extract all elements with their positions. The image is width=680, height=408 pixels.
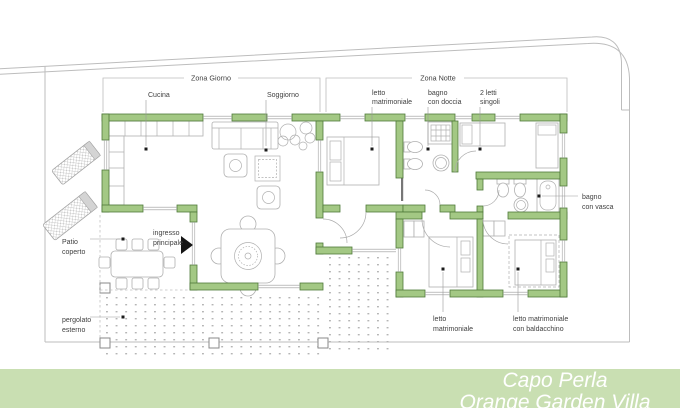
pergola-dot (339, 278, 341, 279)
pergola-dot (250, 353, 252, 354)
pergola-dot (221, 311, 223, 312)
pergola-dot (164, 297, 166, 298)
pergola-dot (317, 304, 319, 305)
pergola-dot (135, 325, 137, 326)
pergola-dot (288, 311, 290, 312)
room-label-bagno-doccia: bagno (428, 90, 448, 97)
bidet (404, 159, 423, 170)
pergola-dot (116, 311, 118, 312)
pergola-dot (308, 325, 310, 326)
pergola-dot (288, 332, 290, 333)
pergola-dot (269, 332, 271, 333)
pergola-dot (329, 306, 331, 307)
pergola-dot (317, 325, 319, 326)
pergola-dot (339, 341, 341, 342)
pergola-dot (339, 306, 341, 307)
pergola-dot (106, 304, 108, 305)
pergola-dot (135, 346, 137, 347)
pergola-dot (377, 320, 379, 321)
pergola-dot (192, 332, 194, 333)
pergola-dot (329, 313, 331, 314)
double-bed (429, 237, 473, 287)
pergola-dot (192, 325, 194, 326)
pergola-dot (377, 292, 379, 293)
pergola-dot (154, 297, 156, 298)
pergola-dot (367, 264, 369, 265)
pergola-dot (183, 332, 185, 333)
pergola-dot (173, 325, 175, 326)
pergola-dot (339, 320, 341, 321)
room-label-patio: Patio (62, 239, 78, 246)
pergola-dot (348, 306, 350, 307)
pergola-dot (125, 318, 127, 319)
pergola-dot (202, 346, 204, 347)
pergola-dot (298, 297, 300, 298)
pergola-dot (329, 257, 331, 258)
pergola-dot (125, 346, 127, 347)
pergola-dot (348, 285, 350, 286)
pergola-dot (269, 346, 271, 347)
pergola-dot (240, 304, 242, 305)
pergola-dot (260, 353, 262, 354)
pergola-dot (192, 297, 194, 298)
pergola-dot (358, 278, 360, 279)
banner-line1: Capo Perla (459, 370, 650, 392)
pergola-dot (298, 339, 300, 340)
shower (428, 122, 453, 144)
pergola-dot (144, 339, 146, 340)
pergola-post (209, 338, 219, 348)
pergola-dot (329, 320, 331, 321)
pergola-dot (358, 299, 360, 300)
pergola-dot (367, 306, 369, 307)
pergola-dot (231, 353, 233, 354)
pergola-dot (250, 297, 252, 298)
pergola-dot (135, 311, 137, 312)
armchair (224, 154, 247, 177)
pergola-dot (240, 332, 242, 333)
pergola-dot (339, 271, 341, 272)
pergola-dot (348, 299, 350, 300)
pergola-dot (154, 332, 156, 333)
pergola-dot (202, 304, 204, 305)
pergola-dot (106, 297, 108, 298)
pergola-dot (250, 325, 252, 326)
pergola-dot (308, 311, 310, 312)
pergola-dot (387, 306, 389, 307)
pergola-dot (298, 332, 300, 333)
pergola-dot (339, 348, 341, 349)
pergola-dot (317, 353, 319, 354)
pergola-dot (367, 285, 369, 286)
zone-day-label: Zona Giorno (191, 74, 231, 83)
pergola-dot (367, 334, 369, 335)
pergola-dot (288, 325, 290, 326)
pergola-post (318, 338, 328, 348)
pergola-dot (387, 327, 389, 328)
pergola-dot (339, 292, 341, 293)
pergola-dot (358, 271, 360, 272)
pergola-dot (164, 318, 166, 319)
pergola-dot (106, 332, 108, 333)
pergola-dot (240, 311, 242, 312)
pergola-dot (377, 278, 379, 279)
pergola-dot (173, 297, 175, 298)
pergola-dot (317, 332, 319, 333)
pergola-dot (183, 353, 185, 354)
pergola-dot (348, 271, 350, 272)
pergola-dot (279, 325, 281, 326)
pergola-dot (116, 297, 118, 298)
pergola-dot (183, 346, 185, 347)
svg-text:coperto: coperto (62, 249, 85, 256)
pergola-dot (260, 304, 262, 305)
pergola-dot (192, 346, 194, 347)
pergola-dot (329, 334, 331, 335)
svg-text:con doccia: con doccia (428, 99, 462, 106)
pergola-dot (144, 304, 146, 305)
pergola-dot (260, 311, 262, 312)
pergola-dot (269, 353, 271, 354)
pergola-dot (308, 353, 310, 354)
pergola-dot (116, 318, 118, 319)
pergola-dot (288, 339, 290, 340)
pergola-dot (221, 332, 223, 333)
double-bed (327, 137, 379, 185)
pergola-dot (367, 257, 369, 258)
room-label-soggiorno: Soggiorno (267, 92, 299, 99)
pergola-dot (173, 353, 175, 354)
pergola-dot (125, 332, 127, 333)
zone-night-label: Zona Notte (420, 74, 456, 83)
floorplan-slide: Zona Giorno Zona Notte Cucina Soggiorno … (0, 0, 680, 408)
pergola-dot (358, 313, 360, 314)
pergola-dot (339, 264, 341, 265)
pergola-dot (329, 341, 331, 342)
pergola-dot (367, 348, 369, 349)
pergola-dot (116, 304, 118, 305)
title-banner: Capo Perla Orange Garden Villa (0, 369, 680, 408)
pergola-dot (240, 325, 242, 326)
pergola-dot (288, 353, 290, 354)
pergola-dot (358, 292, 360, 293)
pergola-dot (173, 346, 175, 347)
pergola-dot (125, 304, 127, 305)
pergola-dot (377, 264, 379, 265)
pergola-dot (269, 304, 271, 305)
pergola-dot (135, 332, 137, 333)
villa-title: Capo Perla Orange Garden Villa (459, 370, 650, 408)
pergola-dot (212, 311, 214, 312)
pergola-dot (240, 297, 242, 298)
svg-text:con baldacchino: con baldacchino (513, 326, 564, 333)
pergola-dot (221, 297, 223, 298)
pergola-dot (298, 346, 300, 347)
pergola-dot (231, 332, 233, 333)
room-label-cucina: Cucina (148, 92, 170, 99)
pergola-dot (144, 325, 146, 326)
pergola-dot (135, 353, 137, 354)
pergola-post (100, 283, 110, 293)
pergola-dot (288, 304, 290, 305)
svg-text:matrimoniale: matrimoniale (433, 326, 473, 333)
pergola-dot (164, 353, 166, 354)
pergola-dot (269, 311, 271, 312)
pergola-dot (308, 339, 310, 340)
pergola-dot (231, 304, 233, 305)
pergola-dot (212, 304, 214, 305)
pergola-dot (377, 285, 379, 286)
pergola-dot (154, 311, 156, 312)
pergola-dot (367, 292, 369, 293)
pergola-dot (348, 320, 350, 321)
single-bed (536, 123, 558, 168)
pergola-dot (329, 348, 331, 349)
pergola-dot (183, 339, 185, 340)
room-label-letti-singoli: 2 letti (480, 90, 497, 97)
pergola-dot (221, 346, 223, 347)
pergola-dot (308, 318, 310, 319)
pergola-dot (348, 334, 350, 335)
pergola-dot (144, 318, 146, 319)
pergola-dot (164, 332, 166, 333)
pergola-dot (387, 278, 389, 279)
pergola-dot (231, 346, 233, 347)
room-label-baldacchino: letto matrimoniale (513, 316, 568, 323)
pergola-dot (288, 346, 290, 347)
pergola-dot (260, 325, 262, 326)
pergola-dot (348, 313, 350, 314)
pergola-dot (387, 257, 389, 258)
pergola-dot (106, 325, 108, 326)
pergola-dot (279, 353, 281, 354)
pergola-dot (377, 348, 379, 349)
pergola-dot (329, 285, 331, 286)
pergola-dot (387, 271, 389, 272)
room-label-pergolato: pergolato (62, 317, 91, 324)
pergola-dot (358, 257, 360, 258)
bidet (514, 179, 526, 197)
pergola-dot (358, 320, 360, 321)
pergola-dot (377, 271, 379, 272)
pergola-dot (308, 332, 310, 333)
pergola-dot (250, 304, 252, 305)
pergola-dot (260, 297, 262, 298)
pergola-post (100, 338, 110, 348)
pergola-dot (154, 318, 156, 319)
pergola-dot (387, 264, 389, 265)
pergola-dot (173, 304, 175, 305)
pergola-dot (377, 313, 379, 314)
svg-text:con vasca: con vasca (582, 204, 614, 211)
wardrobe (404, 221, 424, 237)
pergola-dot (339, 327, 341, 328)
pergola-dot (269, 325, 271, 326)
pergola-dot (173, 318, 175, 319)
pergola-dot (164, 304, 166, 305)
pergola-dot (221, 318, 223, 319)
pergola-dot (144, 353, 146, 354)
pergola-dot (164, 325, 166, 326)
pergola-dot (154, 339, 156, 340)
pergola-dot (339, 313, 341, 314)
pergola-dot (116, 325, 118, 326)
pergola-dot (279, 297, 281, 298)
pergola-dot (387, 299, 389, 300)
pergola-dot (339, 285, 341, 286)
pergola-dot (144, 297, 146, 298)
pergola-dot (308, 304, 310, 305)
room-label-letto-top: letto (372, 90, 385, 97)
pergola-dot (144, 332, 146, 333)
pergola-dot (387, 334, 389, 335)
pergola-dot (358, 341, 360, 342)
pergola-dot (231, 339, 233, 340)
pergola-dot (367, 271, 369, 272)
pergola-dot (269, 297, 271, 298)
pergola-dot (317, 297, 319, 298)
pergola-dot (387, 292, 389, 293)
pergola-dot (231, 311, 233, 312)
pergola-dot (329, 278, 331, 279)
pergola-dot (192, 311, 194, 312)
wardrobe (483, 221, 505, 236)
pergola-dot (240, 353, 242, 354)
pergola-dot (339, 299, 341, 300)
pergola-dot (367, 320, 369, 321)
pergola-dot (202, 318, 204, 319)
pergola-dot (367, 327, 369, 328)
pergola-dot (308, 346, 310, 347)
pergola-dot (329, 271, 331, 272)
pergola-dot (116, 332, 118, 333)
pergola-dot (387, 341, 389, 342)
coffee-table (255, 156, 280, 181)
pergola-dot (348, 292, 350, 293)
pergola-dot (339, 334, 341, 335)
pergola-dot (358, 327, 360, 328)
pergola-dot (250, 339, 252, 340)
pergola-dot (298, 325, 300, 326)
pergola-dot (387, 285, 389, 286)
pergola-dot (240, 318, 242, 319)
pergola-dot (202, 311, 204, 312)
pergola-dot (173, 339, 175, 340)
pergola-dot (377, 341, 379, 342)
single-bed (460, 123, 505, 146)
pergola-dot (317, 311, 319, 312)
pergola-dot (348, 257, 350, 258)
toilet (404, 142, 423, 153)
armchair (257, 186, 280, 209)
svg-text:principale: principale (153, 240, 183, 247)
pergola-dot (377, 306, 379, 307)
sofa (212, 122, 278, 149)
pergola-dot (231, 318, 233, 319)
pergola-dot (250, 311, 252, 312)
pergola-dot (377, 334, 379, 335)
pergola-dot (221, 304, 223, 305)
pergola-dot (202, 339, 204, 340)
pergola-dot (125, 325, 127, 326)
pergola-dot (269, 318, 271, 319)
pergola-dot (212, 325, 214, 326)
pergola-dot (106, 318, 108, 319)
pergola-dot (221, 325, 223, 326)
pergola-dot (348, 327, 350, 328)
pergola-dot (202, 353, 204, 354)
sink (433, 155, 449, 171)
pergola-dot (250, 346, 252, 347)
pergola-dot (125, 297, 127, 298)
pergola-dot (298, 353, 300, 354)
room-label-ingresso: ingresso (153, 230, 180, 237)
pergola-dot (183, 325, 185, 326)
pergola-dot (348, 264, 350, 265)
banner-line2: Orange Garden Villa (459, 392, 650, 408)
pergola-dot (329, 264, 331, 265)
pergola-dot (260, 332, 262, 333)
pergola-dot (260, 318, 262, 319)
pergola-dot (125, 353, 127, 354)
pergola-dot (279, 332, 281, 333)
pergola-dot (125, 311, 127, 312)
pergola-dot (358, 334, 360, 335)
pergola-dot (260, 339, 262, 340)
pergola-dot (135, 297, 137, 298)
svg-text:matrimoniale: matrimoniale (372, 99, 412, 106)
sun-lounger (43, 191, 98, 240)
pergola-dot (279, 339, 281, 340)
pergola-dot (192, 318, 194, 319)
pergola-dot (154, 353, 156, 354)
pergola-dot (116, 346, 118, 347)
pergola-dot (106, 353, 108, 354)
pergola-dot (358, 348, 360, 349)
pergola-dot (212, 318, 214, 319)
pergola-dot (192, 304, 194, 305)
pergola-dot (173, 311, 175, 312)
pergola-dot (125, 339, 127, 340)
svg-text:singoli: singoli (480, 99, 500, 106)
pergola-dot (279, 311, 281, 312)
sun-lounger (52, 141, 101, 185)
pergola-dot (192, 339, 194, 340)
pergola-dot (367, 299, 369, 300)
pergola-dot (154, 325, 156, 326)
pergola-dot (348, 348, 350, 349)
pergola-dot (329, 292, 331, 293)
pergola-dot (212, 297, 214, 298)
pergola-dot (367, 313, 369, 314)
canopy-bed (509, 235, 559, 287)
pergola-dot (279, 304, 281, 305)
pergola-dot (250, 318, 252, 319)
pergola-dot (144, 346, 146, 347)
pergola-dot (308, 297, 310, 298)
pergola-dot (377, 299, 379, 300)
pergola-dot (279, 318, 281, 319)
pergola-dot (367, 278, 369, 279)
pergola-dot (339, 257, 341, 258)
pergola-dot (183, 311, 185, 312)
sink (514, 198, 528, 212)
pergola-dot (377, 257, 379, 258)
pergola-dot (202, 325, 204, 326)
pergola-dot (298, 304, 300, 305)
room-label-bagno-vasca: bagno (582, 194, 602, 201)
pergola-dot (358, 285, 360, 286)
